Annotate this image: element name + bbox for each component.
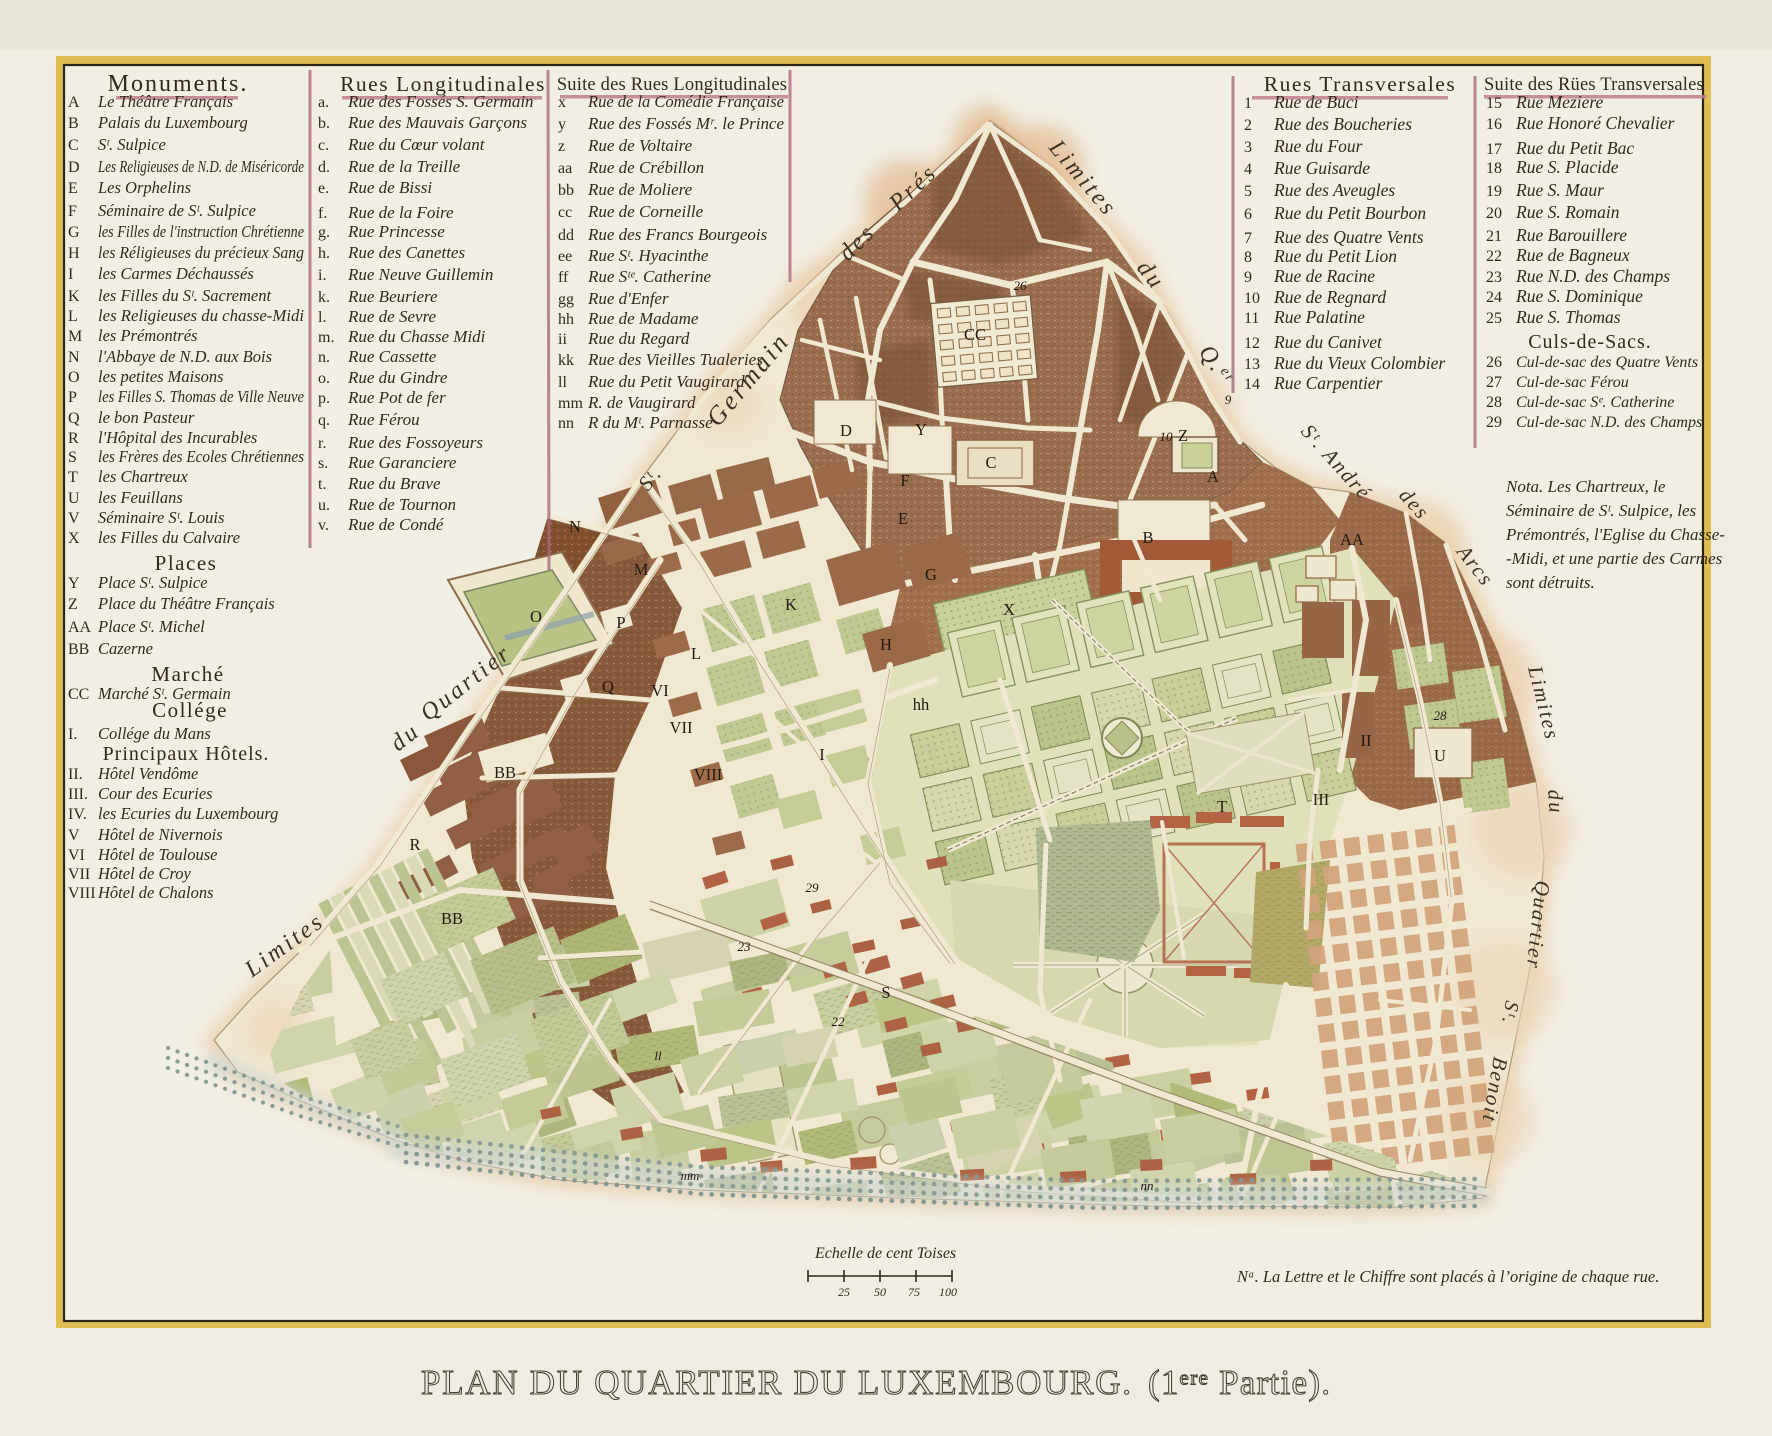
svg-text:VII: VII (68, 866, 90, 883)
svg-text:H: H (880, 635, 892, 654)
svg-text:Echelle de cent Toises: Echelle de cent Toises (814, 1245, 956, 1262)
svg-text:A: A (1207, 467, 1219, 486)
svg-text:les Filles S. Thomas de Ville: les Filles S. Thomas de Ville Neuve (98, 387, 304, 406)
svg-text:R: R (68, 430, 79, 447)
svg-text:les Réligieuses du précieux Sa: les Réligieuses du précieux Sang (98, 243, 304, 262)
svg-text:E: E (898, 509, 908, 528)
svg-text:Rue de Voltaire: Rue de Voltaire (587, 136, 693, 155)
svg-text:Q: Q (68, 410, 80, 427)
svg-text:75: 75 (908, 1285, 920, 1299)
svg-text:Nᵃ. La Lettre et le Chiffre so: Nᵃ. La Lettre et le Chiffre sont placés … (1236, 1267, 1659, 1286)
svg-text:Rue S. Maur: Rue S. Maur (1515, 180, 1604, 200)
svg-text:m.: m. (318, 329, 334, 346)
svg-text:q.: q. (318, 412, 330, 429)
svg-text:Rue des Boucheries: Rue des Boucheries (1273, 114, 1412, 134)
svg-text:n.: n. (318, 349, 330, 366)
svg-text:5: 5 (1244, 183, 1252, 200)
svg-text:100: 100 (939, 1285, 957, 1299)
svg-text:Rue d'Enfer: Rue d'Enfer (587, 289, 669, 308)
svg-text:H: H (68, 245, 80, 262)
svg-text:Les Religieuses de N.D. de Mis: Les Religieuses de N.D. de Miséricorde (97, 157, 304, 176)
svg-text:10: 10 (1244, 290, 1260, 307)
svg-text:v.: v. (318, 517, 329, 534)
svg-text:Z: Z (68, 596, 78, 613)
svg-text:Cul-de-sac Sᵉ. Catherine: Cul-de-sac Sᵉ. Catherine (1516, 394, 1674, 411)
svg-text:z: z (558, 138, 565, 155)
svg-text:22: 22 (832, 1014, 846, 1029)
svg-text:les Feuillans: les Feuillans (98, 488, 183, 507)
svg-text:II: II (1361, 731, 1372, 750)
svg-text:2: 2 (1244, 117, 1252, 134)
svg-text:Rue Garanciere: Rue Garanciere (347, 453, 457, 472)
svg-text:16: 16 (1486, 116, 1502, 133)
svg-text:1: 1 (1244, 95, 1252, 112)
svg-text:Rue de Condé: Rue de Condé (347, 515, 445, 534)
svg-text:Rue du Brave: Rue du Brave (347, 474, 441, 493)
svg-text:Z: Z (1178, 426, 1188, 445)
svg-text:Cazerne: Cazerne (98, 639, 153, 658)
svg-text:Culs-de-Sacs.: Culs-de-Sacs. (1528, 331, 1652, 353)
svg-text:nn: nn (558, 415, 574, 432)
svg-text:Rue du Gindre: Rue du Gindre (347, 368, 448, 387)
svg-text:Rue du Petit Vaugirard: Rue du Petit Vaugirard (587, 372, 745, 391)
svg-text:u.: u. (318, 497, 330, 514)
svg-text:Rue de Regnard: Rue de Regnard (1273, 287, 1386, 307)
svg-text:O: O (530, 607, 542, 626)
svg-text:O: O (68, 369, 80, 386)
svg-text:les petites Maisons: les petites Maisons (98, 367, 224, 386)
svg-text:Rue du Chasse Midi: Rue du Chasse Midi (347, 327, 486, 346)
svg-text:les Chartreux: les Chartreux (98, 467, 188, 486)
svg-text:les Frères des Ecoles Chrétien: les Frères des Ecoles Chrétiennes (98, 447, 304, 466)
svg-text:Rue du Four: Rue du Four (1273, 136, 1363, 156)
svg-text:y: y (558, 116, 566, 133)
svg-text:Principaux Hôtels.: Principaux Hôtels. (103, 743, 270, 765)
svg-text:10: 10 (1160, 429, 1174, 444)
svg-text:E: E (68, 180, 78, 197)
svg-text:les Filles du Sᵗ. Sacrement: les Filles du Sᵗ. Sacrement (98, 286, 271, 305)
svg-text:VIII: VIII (694, 765, 722, 784)
svg-text:Rue de Buci: Rue de Buci (1273, 92, 1359, 112)
svg-text:les Religieuses du chasse-Midi: les Religieuses du chasse-Midi (98, 306, 304, 325)
svg-text:h.: h. (318, 245, 330, 262)
svg-text:27: 27 (1486, 374, 1502, 391)
svg-text:Q: Q (602, 677, 614, 696)
svg-text:B: B (1142, 528, 1153, 547)
svg-text:G: G (925, 565, 937, 584)
svg-text:Rue du Vieux Colombier: Rue du Vieux Colombier (1273, 353, 1445, 373)
svg-text:sont détruits.: sont détruits. (1506, 573, 1595, 592)
svg-text:Rue Férou: Rue Férou (347, 410, 420, 429)
svg-text:17: 17 (1486, 141, 1502, 158)
svg-text:Rue des Fossés Mʳ. le Prince: Rue des Fossés Mʳ. le Prince (587, 114, 784, 133)
svg-text:Rue des Mauvais Garçons: Rue des Mauvais Garçons (347, 113, 527, 132)
svg-text:K: K (68, 288, 80, 305)
svg-text:Hôtel de Croy: Hôtel de Croy (97, 864, 192, 883)
svg-text:Rue Meziere: Rue Meziere (1515, 92, 1604, 112)
svg-text:Sᵗ. Sulpice: Sᵗ. Sulpice (98, 135, 166, 154)
svg-text:Cul-de-sac Férou: Cul-de-sac Férou (1516, 374, 1629, 391)
svg-text:13: 13 (1244, 356, 1260, 373)
svg-text:G: G (68, 224, 80, 241)
svg-text:28: 28 (1434, 708, 1448, 723)
svg-text:21: 21 (1486, 228, 1502, 245)
svg-text:Rue S. Romain: Rue S. Romain (1515, 202, 1620, 222)
svg-text:Rue du Petit Bourbon: Rue du Petit Bourbon (1273, 203, 1426, 223)
svg-text:Rue Sᵗᵉ. Catherine: Rue Sᵗᵉ. Catherine (587, 267, 711, 286)
svg-text:(1ᵉʳᵉ Partie).: (1ᵉʳᵉ Partie). (1148, 1363, 1330, 1402)
svg-text:50: 50 (874, 1285, 886, 1299)
svg-text:I: I (819, 745, 825, 764)
svg-text:23: 23 (1486, 269, 1502, 286)
svg-text:29: 29 (1486, 414, 1502, 431)
svg-text:Y: Y (915, 420, 927, 439)
svg-text:V: V (68, 510, 80, 527)
svg-text:A: A (68, 94, 80, 111)
svg-text:III: III (1313, 790, 1329, 809)
svg-text:Rue N.D. des Champs: Rue N.D. des Champs (1515, 266, 1670, 286)
svg-text:Sᵗ.: Sᵗ. (1497, 999, 1523, 1027)
svg-text:les Prémontrés: les Prémontrés (98, 326, 197, 345)
svg-text:i.: i. (318, 267, 326, 284)
svg-text:F: F (900, 471, 909, 490)
svg-text:N: N (68, 349, 80, 366)
svg-text:Séminaire de Sᵗ. Sulpice: Séminaire de Sᵗ. Sulpice (98, 201, 256, 220)
svg-text:Les Orphelins: Les Orphelins (97, 178, 191, 197)
svg-text:k.: k. (318, 289, 330, 306)
svg-text:d.: d. (318, 159, 330, 176)
svg-text:le bon Pasteur: le bon Pasteur (98, 408, 195, 427)
svg-text:4: 4 (1244, 161, 1252, 178)
svg-text:Prémontrés, l'Eglise du Chasse: Prémontrés, l'Eglise du Chasse- (1505, 525, 1725, 544)
svg-text:Rue S. Dominique: Rue S. Dominique (1515, 286, 1643, 306)
svg-text:C: C (985, 453, 996, 472)
svg-text:X: X (1003, 600, 1015, 619)
svg-text:du: du (1543, 789, 1569, 816)
svg-text:III.: III. (68, 786, 88, 803)
svg-text:ll: ll (558, 374, 567, 391)
svg-text:BB: BB (441, 909, 463, 928)
svg-text:Rue de Madame: Rue de Madame (587, 309, 699, 328)
svg-text:c.: c. (318, 137, 329, 154)
svg-text:Rue de la Treille: Rue de la Treille (347, 157, 461, 176)
svg-text:Rue de Crébillon: Rue de Crébillon (587, 158, 704, 177)
svg-text:BB: BB (494, 763, 516, 782)
svg-text:Rue Cassette: Rue Cassette (347, 347, 437, 366)
svg-text:Rue des Fossoyeurs: Rue des Fossoyeurs (347, 433, 483, 452)
svg-text:Rue de Bagneux: Rue de Bagneux (1515, 245, 1630, 265)
svg-text:Rue des Francs Bourgeois: Rue des Francs Bourgeois (587, 225, 768, 244)
svg-text:Rue Palatine: Rue Palatine (1273, 307, 1365, 327)
svg-text:22: 22 (1486, 248, 1502, 265)
svg-text:26: 26 (1486, 354, 1502, 371)
svg-text:Y: Y (68, 575, 80, 592)
svg-text:Rue Pot de fer: Rue Pot de fer (347, 388, 446, 407)
svg-text:U: U (68, 490, 80, 507)
svg-text:Rue Carpentier: Rue Carpentier (1273, 373, 1383, 393)
svg-text:aa: aa (558, 160, 572, 177)
svg-text:p.: p. (318, 390, 330, 407)
svg-text:L: L (691, 644, 701, 663)
svg-text:29: 29 (806, 880, 820, 895)
svg-text:Rue Barouillere: Rue Barouillere (1515, 225, 1627, 245)
svg-text:gg: gg (558, 291, 574, 308)
svg-text:T: T (1217, 797, 1227, 816)
svg-text:S: S (68, 449, 77, 466)
svg-text:R du Mᵗ. Parnasse: R du Mᵗ. Parnasse (587, 413, 713, 432)
svg-text:PLAN DU QUARTIER DU LUXEMBOURG: PLAN DU QUARTIER DU LUXEMBOURG. (421, 1363, 1131, 1402)
svg-text:Place Sᵗ. Sulpice: Place Sᵗ. Sulpice (97, 573, 208, 592)
svg-text:Rue de Moliere: Rue de Moliere (587, 180, 693, 199)
svg-text:r.: r. (318, 435, 326, 452)
svg-text:Cour des Ecuries: Cour des Ecuries (98, 784, 213, 803)
svg-text:l.: l. (318, 309, 326, 326)
svg-text:les Carmes Déchaussés: les Carmes Déchaussés (98, 264, 254, 283)
svg-text:VIII: VIII (68, 885, 96, 902)
svg-text:g.: g. (318, 224, 330, 241)
svg-text:Rue Sᵗ. Hyacinthe: Rue Sᵗ. Hyacinthe (587, 246, 709, 265)
svg-text:8: 8 (1244, 249, 1252, 266)
svg-text:Collége: Collége (152, 698, 228, 722)
svg-text:Rue de Bissi: Rue de Bissi (347, 178, 432, 197)
svg-text:P: P (616, 613, 625, 632)
svg-text:Rue de Tournon: Rue de Tournon (347, 495, 456, 514)
svg-text:D: D (68, 159, 80, 176)
svg-text:Rue des Fossés S. Germain: Rue des Fossés S. Germain (347, 92, 534, 111)
svg-text:15: 15 (1486, 95, 1502, 112)
svg-text:25: 25 (838, 1285, 850, 1299)
svg-text:U: U (1434, 746, 1446, 765)
svg-text:25: 25 (1486, 310, 1502, 327)
svg-text:Nota. Les Chartreux, le: Nota. Les Chartreux, le (1505, 477, 1666, 496)
svg-text:f.: f. (318, 205, 327, 222)
svg-text:Rue de la Foire: Rue de la Foire (347, 203, 454, 222)
svg-text:6: 6 (1244, 206, 1252, 223)
svg-text:9: 9 (1225, 392, 1232, 407)
svg-text:C: C (68, 137, 79, 154)
svg-text:Rue Beuriere: Rue Beuriere (347, 287, 438, 306)
svg-text:28: 28 (1486, 394, 1502, 411)
svg-text:CC: CC (68, 686, 89, 703)
svg-text:26: 26 (1014, 278, 1028, 293)
svg-text:Rue des Vieilles Tualeries: Rue des Vieilles Tualeries (587, 350, 763, 369)
svg-text:Rue Honoré Chevalier: Rue Honoré Chevalier (1515, 113, 1675, 133)
svg-text:V: V (68, 827, 80, 844)
svg-text:Rue des Canettes: Rue des Canettes (347, 243, 465, 262)
svg-text:ee: ee (558, 248, 572, 265)
svg-text:-Midi, et une partie des Carme: -Midi, et une partie des Carmes (1506, 549, 1723, 568)
svg-text:I.: I. (68, 726, 77, 743)
svg-text:Rue de Racine: Rue de Racine (1273, 266, 1375, 286)
svg-text:Place du Théâtre Français: Place du Théâtre Français (97, 594, 275, 613)
svg-text:mm: mm (681, 1168, 700, 1183)
svg-text:Marché: Marché (151, 662, 224, 686)
svg-text:IV.: IV. (68, 806, 87, 823)
svg-text:AA: AA (1340, 530, 1364, 549)
svg-text:Rue du Petit Bac: Rue du Petit Bac (1515, 138, 1634, 158)
svg-text:I: I (68, 266, 73, 283)
svg-text:Séminaire de Sᵗ. Sulpice, les: Séminaire de Sᵗ. Sulpice, les (1506, 501, 1697, 520)
svg-text:II.: II. (68, 766, 83, 783)
svg-text:3: 3 (1244, 139, 1252, 156)
svg-text:18: 18 (1486, 160, 1502, 177)
svg-text:24: 24 (1486, 289, 1502, 306)
svg-text:kk: kk (558, 352, 574, 369)
svg-text:Hôtel de Chalons: Hôtel de Chalons (97, 883, 214, 902)
svg-text:Rue du Cœur volant: Rue du Cœur volant (347, 135, 486, 154)
svg-text:b.: b. (318, 115, 330, 132)
svg-text:Hôtel de Toulouse: Hôtel de Toulouse (97, 845, 217, 864)
svg-text:hh: hh (558, 311, 574, 328)
svg-text:Cul-de-sac N.D. des Champs: Cul-de-sac N.D. des Champs (1516, 414, 1702, 431)
svg-text:e.: e. (318, 180, 329, 197)
svg-text:K: K (785, 595, 797, 614)
svg-text:ff: ff (558, 269, 569, 286)
svg-text:ii: ii (558, 331, 567, 348)
svg-text:Rue du Regard: Rue du Regard (587, 329, 690, 348)
svg-text:Hôtel de Nivernois: Hôtel de Nivernois (97, 825, 223, 844)
svg-text:o.: o. (318, 370, 330, 387)
svg-text:Collége du Mans: Collége du Mans (98, 724, 211, 743)
svg-text:S: S (881, 983, 890, 1002)
svg-text:Rue des Aveugles: Rue des Aveugles (1273, 180, 1395, 200)
svg-text:CC: CC (964, 325, 986, 344)
svg-text:cc: cc (558, 204, 572, 221)
svg-text:Séminaire Sᵗ. Louis: Séminaire Sᵗ. Louis (98, 508, 224, 527)
svg-text:Rue Neuve Guillemin: Rue Neuve Guillemin (347, 265, 493, 284)
svg-text:23: 23 (738, 939, 752, 954)
svg-text:Rue du Petit Lion: Rue du Petit Lion (1273, 246, 1397, 266)
svg-text:7: 7 (1244, 230, 1252, 247)
svg-text:19: 19 (1486, 183, 1502, 200)
svg-text:M: M (634, 560, 649, 579)
svg-text:les Filles de l'instruction Ch: les Filles de l'instruction Chrétienne (98, 222, 304, 241)
svg-text:M: M (68, 328, 82, 345)
svg-text:BB: BB (68, 641, 89, 658)
svg-text:AA: AA (68, 619, 92, 636)
svg-text:t.: t. (318, 476, 326, 493)
svg-text:B: B (68, 115, 79, 132)
svg-text:VII: VII (670, 718, 693, 737)
svg-text:Rue des Quatre Vents: Rue des Quatre Vents (1273, 227, 1424, 247)
svg-text:Hôtel Vendôme: Hôtel Vendôme (97, 764, 198, 783)
svg-text:14: 14 (1244, 376, 1260, 393)
svg-text:R. de Vaugirard: R. de Vaugirard (587, 393, 696, 412)
svg-text:D: D (840, 421, 852, 440)
svg-text:11: 11 (1244, 310, 1259, 327)
svg-text:Rue S. Thomas: Rue S. Thomas (1515, 307, 1621, 327)
svg-text:Rue de Sevre: Rue de Sevre (347, 307, 437, 326)
svg-text:les Ecuries du Luxembourg: les Ecuries du Luxembourg (98, 804, 278, 823)
svg-text:Rue Princesse: Rue Princesse (347, 222, 445, 241)
svg-text:Rue S. Placide: Rue S. Placide (1515, 157, 1619, 177)
svg-text:Rue de Corneille: Rue de Corneille (587, 202, 704, 221)
svg-text:les Filles du Calvaire: les Filles du Calvaire (98, 528, 240, 547)
svg-text:X: X (68, 530, 80, 547)
svg-text:Rue Guisarde: Rue Guisarde (1273, 158, 1370, 178)
svg-text:l'Hôpital des Incurables: l'Hôpital des Incurables (98, 428, 257, 447)
svg-text:9: 9 (1244, 269, 1252, 286)
svg-text:Place Sᵗ. Michel: Place Sᵗ. Michel (97, 617, 205, 636)
svg-text:Le Théâtre Français: Le Théâtre Français (97, 92, 233, 111)
svg-text:Rue du Canivet: Rue du Canivet (1273, 332, 1383, 352)
svg-text:nn: nn (1141, 1178, 1154, 1193)
svg-text:VI: VI (68, 847, 85, 864)
svg-text:F: F (68, 203, 77, 220)
svg-text:Rue de la Comédie Française: Rue de la Comédie Française (587, 92, 784, 111)
svg-text:Cul-de-sac des Quatre Vents: Cul-de-sac des Quatre Vents (1516, 354, 1698, 371)
svg-text:l'Abbaye de N.D. aux Bois: l'Abbaye de N.D. aux Bois (98, 347, 272, 366)
svg-text:R: R (409, 835, 420, 854)
svg-text:N: N (569, 517, 581, 536)
svg-text:L: L (68, 308, 78, 325)
svg-text:hh: hh (913, 695, 930, 714)
svg-text:Places: Places (155, 551, 218, 575)
svg-text:Palais du Luxembourg: Palais du Luxembourg (97, 113, 248, 132)
svg-text:a.: a. (318, 94, 329, 111)
svg-text:P: P (68, 389, 77, 406)
svg-text:ll: ll (654, 1048, 662, 1063)
svg-text:T: T (68, 469, 78, 486)
svg-text:x: x (558, 94, 566, 111)
svg-text:bb: bb (558, 182, 574, 199)
svg-text:s.: s. (318, 455, 328, 472)
svg-text:dd: dd (558, 227, 574, 244)
svg-text:20: 20 (1486, 205, 1502, 222)
svg-text:VI: VI (651, 681, 668, 700)
svg-text:mm: mm (558, 395, 583, 412)
svg-text:12: 12 (1244, 335, 1260, 352)
